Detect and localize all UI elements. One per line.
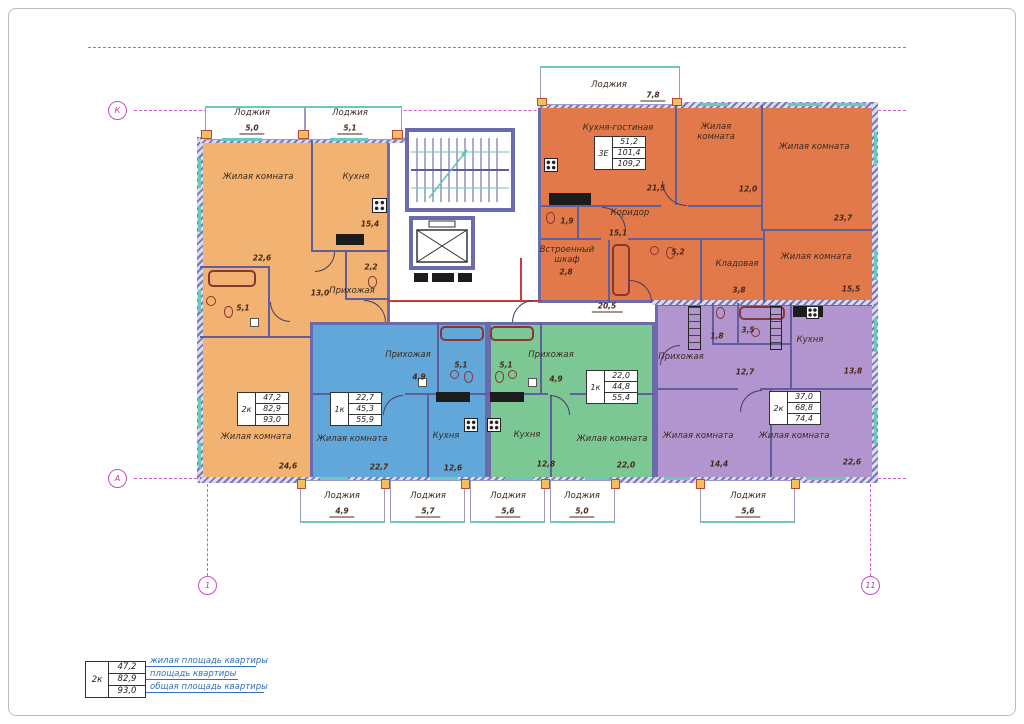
room-label-loggia: Лоджия <box>591 81 627 91</box>
axis-marker-a: А <box>108 469 127 488</box>
window <box>700 103 728 106</box>
room-area-loggia: 5,1 <box>337 124 362 135</box>
loggia-pier <box>392 130 403 139</box>
partition <box>761 229 872 231</box>
room-label-loggia: Лоджия <box>410 492 446 502</box>
room-label-kitchen: Кухня <box>433 432 460 442</box>
kitchen-counter-icon <box>490 392 524 402</box>
apartment-living-area: 37,0 <box>788 392 820 403</box>
axis-marker-11: 11 <box>861 576 880 595</box>
sink-icon <box>508 370 517 379</box>
apartment-total-area: 55,9 <box>349 415 381 425</box>
room-label-hall: Прихожая <box>385 351 431 361</box>
room-label-living: Жилая комната <box>317 435 388 445</box>
apartment-living-area: 51,2 <box>613 137 645 148</box>
window <box>198 398 201 428</box>
room-label-corridor: Коридор <box>611 209 650 219</box>
window <box>874 132 877 166</box>
axis-line-top <box>88 47 906 48</box>
loggia-pier <box>201 130 212 139</box>
room-label-kitchen-living: Кухня-гостиная <box>583 124 654 134</box>
electrical-panel <box>432 273 454 282</box>
apartment-total-area: 93,0 <box>256 415 288 425</box>
room-label-living: Жилая комната <box>779 143 850 153</box>
stove-icon <box>464 418 478 432</box>
axis-marker-1-label: 1 <box>205 581 210 590</box>
window <box>874 408 877 444</box>
apartment-area: 82,9 <box>256 404 288 415</box>
apartment-total-area: 109,2 <box>613 159 645 169</box>
legend-total-value: 93,0 <box>109 686 145 697</box>
apartment-type: 3Е <box>595 137 613 169</box>
partition <box>763 231 765 303</box>
room-area: 4,9 <box>412 373 425 382</box>
room-area: 12,7 <box>736 368 755 377</box>
window <box>198 290 201 312</box>
room-label-living: Жилая комната <box>693 123 739 143</box>
window <box>198 442 201 468</box>
apartment-area: 44,8 <box>605 382 637 393</box>
apartment-info-table-orange: 2к 47,2 82,9 93,0 <box>237 392 289 426</box>
room-area: 12,8 <box>537 460 556 469</box>
toilet-icon <box>546 212 555 224</box>
partition <box>760 388 872 390</box>
partition <box>688 205 763 207</box>
apartment-living-area: 22,0 <box>605 371 637 382</box>
apartment-area: 101,4 <box>613 148 645 159</box>
corridor-wall-line <box>388 300 542 302</box>
loggia-pier <box>461 479 470 489</box>
axis-line-1 <box>207 484 208 576</box>
room-area: 15,5 <box>842 285 861 294</box>
sink-icon <box>206 296 216 306</box>
apartment-info-table-purple: 2к 37,0 68,8 74,4 <box>769 391 821 425</box>
room-area: 22,6 <box>843 458 862 467</box>
room-label-living: Жилая комната <box>781 253 852 263</box>
room-area: 15,1 <box>609 229 628 238</box>
electrical-panel <box>414 273 428 282</box>
cabinet-icon <box>770 306 782 350</box>
room-label-loggia: Лоджия <box>564 492 600 502</box>
legend-leader-total <box>146 692 264 693</box>
window <box>664 477 690 480</box>
room-area: 13,8 <box>844 367 863 376</box>
axis-marker-1: 1 <box>198 576 217 595</box>
bathtub-icon <box>612 244 630 296</box>
room-area-loggia: 7,8 <box>640 91 665 102</box>
axis-marker-a-label: А <box>115 474 120 483</box>
room-area: 12,0 <box>739 185 758 194</box>
room-label-wardrobe: Встроенный шкаф <box>536 246 598 266</box>
loggia-pier <box>297 479 306 489</box>
sink-icon <box>650 246 659 255</box>
legend-label-living: жилая площадь квартиры <box>150 656 268 666</box>
stove-icon <box>487 418 501 432</box>
apartment-type: 1к <box>331 393 349 425</box>
window <box>330 138 368 141</box>
room-area-bath: 5,2 <box>671 248 684 257</box>
window <box>198 158 201 188</box>
partition <box>311 140 313 252</box>
window <box>874 318 877 352</box>
room-label-kitchen: Кухня <box>514 431 541 441</box>
apartment-living-area: 22,7 <box>349 393 381 404</box>
room-area: 23,7 <box>834 214 853 223</box>
window <box>788 103 822 106</box>
room-label-loggia: Лоджия <box>332 109 368 119</box>
room-label-hall: Прихожая <box>658 353 704 363</box>
kitchen-counter-icon <box>549 193 591 205</box>
window <box>222 138 262 141</box>
room-label-loggia: Лоджия <box>730 492 766 502</box>
partition <box>790 303 792 390</box>
sink-icon <box>450 370 459 379</box>
elevator-icon <box>413 220 471 266</box>
room-label-living: Жилая комната <box>577 435 648 445</box>
window <box>836 103 866 106</box>
window <box>874 250 877 280</box>
loggia-pier <box>537 98 547 106</box>
room-area-loggia: 5,6 <box>735 507 760 518</box>
room-area-loggia: 5,6 <box>495 507 520 518</box>
bathtub-icon <box>208 270 256 287</box>
window <box>198 206 201 232</box>
toilet-icon <box>495 371 504 383</box>
partition <box>700 240 702 303</box>
wardrobe-icon <box>688 306 701 350</box>
axis-line-11 <box>870 484 871 576</box>
toilet-icon <box>224 306 233 318</box>
corridor-wall-line <box>520 258 522 302</box>
partition <box>200 266 270 268</box>
room-area: 24,6 <box>279 462 298 471</box>
kitchen-counter-icon <box>336 234 364 245</box>
legend-living-value: 47,2 <box>109 662 145 674</box>
room-area-loggia: 4,9 <box>329 507 354 518</box>
partition <box>427 395 429 477</box>
toilet-icon <box>464 371 473 383</box>
partition <box>577 205 579 240</box>
room-area-wc: 1,8 <box>710 332 723 341</box>
partition <box>200 336 311 338</box>
partition <box>541 205 661 207</box>
stairwell <box>405 128 515 212</box>
apartment-type: 2к <box>238 393 256 425</box>
room-area-loggia: 5,0 <box>569 507 594 518</box>
apartment-total-area: 55,4 <box>605 393 637 403</box>
legend-leader-living <box>146 666 256 667</box>
electrical-panel <box>458 273 472 282</box>
room-area-bath: 5,1 <box>236 304 249 313</box>
room-area: 4,9 <box>549 375 562 384</box>
room-area-loggia: 5,7 <box>415 507 440 518</box>
room-area: 13,0 <box>311 289 330 298</box>
room-area-bath: 3,5 <box>741 326 754 335</box>
axis-marker-k: К <box>108 101 127 120</box>
room-label-living: Жилая комната <box>223 173 294 183</box>
apartment-total-area: 74,4 <box>788 414 820 424</box>
kitchen-counter-icon <box>436 392 470 402</box>
legend-area-value: 82,9 <box>109 674 145 686</box>
washer-icon <box>528 378 537 387</box>
bathtub-icon <box>440 326 484 341</box>
room-label-living: Жилая комната <box>759 432 830 442</box>
loggia-pier <box>696 479 705 489</box>
room-area: 22,6 <box>253 254 272 263</box>
apartment-info-table-3e: 3Е 51,2 101,4 109,2 <box>594 136 646 170</box>
elevator <box>409 216 475 270</box>
room-label-loggia: Лоджия <box>490 492 526 502</box>
floor-plan-sheet: К А 1 11 Лоджия 5,0 Лоджия 5,1 Лоджия 7,… <box>0 0 1024 724</box>
loggia-pier <box>381 479 390 489</box>
room-area: 15,4 <box>361 220 380 229</box>
room-area: 22,0 <box>617 461 636 470</box>
corridor-dimension: 20,5 <box>592 302 623 313</box>
partition <box>761 105 763 231</box>
room-area-wc: 1,9 <box>560 217 573 226</box>
loggia-pier <box>791 479 800 489</box>
room-area: 14,4 <box>710 460 729 469</box>
room-label-hall: Прихожая <box>329 287 375 297</box>
stove-icon <box>544 158 558 172</box>
room-area: 12,6 <box>444 464 463 473</box>
room-area-bath: 5,1 <box>499 361 512 370</box>
room-area: 3,8 <box>732 286 745 295</box>
room-area-loggia: 5,0 <box>239 124 264 135</box>
partition <box>541 238 601 240</box>
apartment-type: 2к <box>770 392 788 424</box>
apartment-area: 45,3 <box>349 404 381 415</box>
room-label-living: Жилая комната <box>663 432 734 442</box>
legend-leader-area <box>146 679 238 680</box>
room-area: 22,7 <box>370 463 389 472</box>
toilet-icon <box>716 307 725 319</box>
window <box>806 477 846 480</box>
apartment-area: 68,8 <box>788 403 820 414</box>
apartment-info-table-green: 1к 22,0 44,8 55,4 <box>586 370 638 404</box>
axis-marker-k-label: К <box>115 106 121 115</box>
room-label-pantry: Кладовая <box>715 260 758 270</box>
axis-marker-11-label: 11 <box>865 581 875 590</box>
room-label-kitchen: Кухня <box>797 336 824 346</box>
apartment-type: 1к <box>587 371 605 403</box>
room-area: 21,5 <box>647 184 666 193</box>
room-area-wc: 2,2 <box>364 263 377 272</box>
stove-icon <box>372 198 387 213</box>
loggia-pier <box>541 479 550 489</box>
room-label-kitchen: Кухня <box>343 173 370 183</box>
stairs-icon <box>409 132 511 208</box>
partition <box>608 240 610 303</box>
room-area-bath: 5,1 <box>454 361 467 370</box>
washer-icon <box>250 318 259 327</box>
room-label-loggia: Лоджия <box>324 492 360 502</box>
legend-apartment-type: 2к <box>86 662 109 697</box>
legend-label-total: общая площадь квартиры <box>150 682 268 692</box>
bathtub-icon <box>490 326 534 341</box>
room-area: 2,8 <box>559 268 572 277</box>
partition <box>628 238 763 240</box>
legend-table: 2к 47,2 82,9 93,0 <box>85 661 146 698</box>
legend-label-area: площадь квартиры <box>150 669 236 679</box>
apartment-living-area: 47,2 <box>256 393 288 404</box>
apartment-info-table-blue: 1к 22,7 45,3 55,9 <box>330 392 382 426</box>
loggia-pier <box>611 479 620 489</box>
room-label-living: Жилая комната <box>221 433 292 443</box>
partition <box>658 388 738 390</box>
loggia-pier <box>298 130 309 139</box>
room-label-loggia: Лоджия <box>234 109 270 119</box>
stove-icon <box>806 306 819 319</box>
room-label-hall: Прихожая <box>528 351 574 361</box>
partition <box>437 322 439 395</box>
loggia-pier <box>672 98 682 106</box>
